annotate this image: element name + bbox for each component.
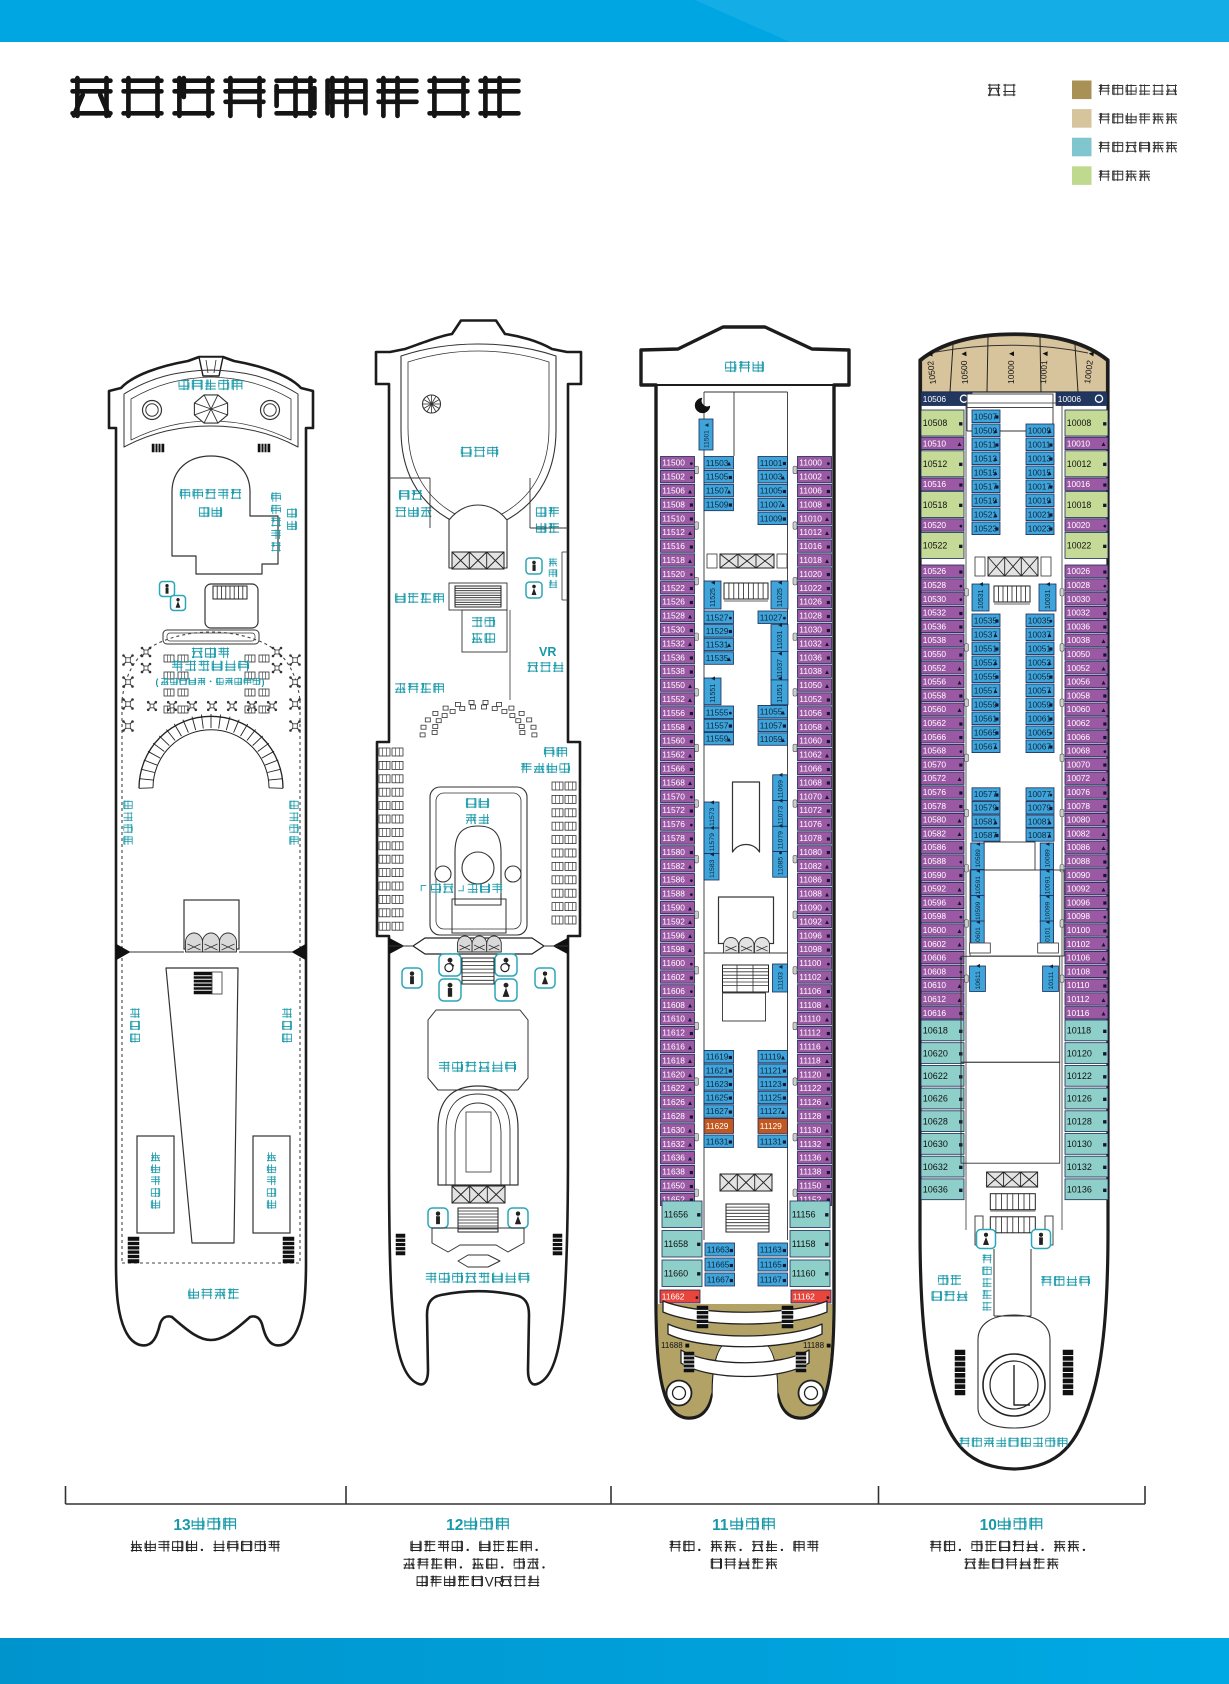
svg-text:■: ■ [826,1030,830,1037]
svg-text:■: ■ [1049,442,1053,449]
svg-text:■: ■ [689,739,693,746]
svg-text:▲: ▲ [824,725,831,732]
svg-text:■: ■ [1103,421,1107,428]
svg-text:10508: 10508 [923,418,948,428]
svg-text:▲: ▲ [956,666,963,673]
svg-text:10610: 10610 [923,980,947,990]
svg-text:■: ■ [995,674,999,681]
svg-text:■: ■ [728,1068,732,1075]
svg-text:■: ■ [729,1247,733,1254]
svg-text:11610: 11610 [662,1014,685,1024]
svg-text:10620: 10620 [923,1048,948,1058]
svg-text:11667: 11667 [707,1275,730,1285]
svg-text:10618: 10618 [923,1026,948,1036]
svg-text:■: ■ [959,721,963,728]
svg-text:11506: 11506 [662,486,685,496]
svg-text:●: ● [1103,914,1107,921]
svg-text:11108: 11108 [799,1000,821,1010]
svg-text:■: ■ [826,655,830,662]
svg-text:10538: 10538 [923,635,947,645]
svg-text:11596: 11596 [662,930,685,940]
svg-text:▲: ▲ [992,498,999,505]
svg-text:■: ■ [826,1086,830,1093]
svg-text:11158: 11158 [792,1239,816,1249]
svg-text:■: ■ [826,600,830,607]
svg-text:■: ■ [959,610,963,617]
svg-text:■: ■ [826,1072,830,1079]
svg-text:11579 ▲: 11579 ▲ [709,824,716,851]
svg-text:■: ■ [729,1277,733,1284]
svg-text:11020: 11020 [799,569,822,579]
svg-text:10532: 10532 [923,608,947,618]
svg-text:10078: 10078 [1067,801,1091,811]
svg-text:10522: 10522 [923,541,948,551]
svg-text:11562: 11562 [662,750,685,760]
svg-text:10126: 10126 [1067,1094,1092,1104]
svg-text:10558: 10558 [923,690,947,700]
svg-text:10090: 10090 [1067,870,1091,880]
svg-text:VR: VR [539,645,556,659]
svg-text:11118: 11118 [799,1055,821,1065]
svg-text:■: ■ [1103,1142,1107,1149]
svg-text:10512: 10512 [923,459,948,469]
svg-text:10511: 10511 [974,439,997,449]
svg-text:■: ■ [1103,610,1107,617]
svg-text:■: ■ [826,1169,830,1176]
svg-text:■: ■ [995,806,999,813]
svg-text:10582: 10582 [923,828,947,838]
svg-text:▲: ▲ [956,997,963,1004]
svg-text:10066: 10066 [1067,732,1091,742]
svg-text:▲: ▲ [780,502,787,509]
svg-text:10531 ▲: 10531 ▲ [978,581,985,609]
svg-text:11582: 11582 [662,861,685,871]
svg-text:10586: 10586 [923,842,947,852]
svg-text:11600: 11600 [662,958,685,968]
svg-text:10506: 10506 [923,394,947,404]
svg-text:11078: 11078 [799,833,822,843]
svg-text:▲: ▲ [687,905,694,912]
svg-text:11560: 11560 [662,736,685,746]
svg-text:11120: 11120 [799,1069,821,1079]
svg-text:10552: 10552 [923,663,947,673]
svg-text:▲: ▲ [1046,498,1053,505]
svg-text:■: ■ [825,1212,829,1219]
svg-text:▲: ▲ [1100,776,1107,783]
svg-text:11621: 11621 [706,1065,729,1075]
svg-text:▲: ▲ [687,919,694,926]
svg-text:▲: ▲ [956,817,963,824]
svg-text:10596: 10596 [923,897,947,907]
svg-text:10012: 10012 [1067,459,1092,469]
svg-text:■: ■ [995,702,999,709]
svg-text:10088: 10088 [1067,856,1091,866]
svg-text:11558: 11558 [662,722,685,732]
svg-text:▲: ▲ [1100,886,1107,893]
svg-text:11616: 11616 [662,1042,685,1052]
svg-text:10102: 10102 [1067,939,1091,949]
svg-text:■: ■ [782,516,786,523]
svg-text:▲: ▲ [992,632,999,639]
svg-text:■: ■ [1103,1051,1107,1058]
svg-text:10006: 10006 [1058,394,1082,404]
svg-text:●: ● [826,1294,830,1301]
svg-text:●: ● [826,474,830,481]
svg-text:■: ■ [1103,790,1107,797]
svg-text:▲: ▲ [824,1156,831,1163]
svg-text:▲: ▲ [824,669,831,676]
svg-text:■: ■ [782,488,786,495]
svg-text:■: ■ [1103,762,1107,769]
svg-text:11086: 11086 [799,875,822,885]
svg-text:10106: 10106 [1067,953,1091,963]
svg-text:11505: 11505 [706,472,729,482]
svg-text:11636: 11636 [662,1153,685,1163]
svg-text:■: ■ [782,461,786,468]
svg-text:■: ■ [959,735,963,742]
svg-text:11532: 11532 [662,638,685,648]
svg-text:11036: 11036 [799,652,822,662]
svg-text:11072: 11072 [799,805,822,815]
svg-text:▲: ▲ [1100,942,1107,949]
svg-text:10036: 10036 [1067,621,1091,631]
svg-text:■: ■ [959,462,963,469]
svg-text:11025 ▲: 11025 ▲ [777,579,784,607]
svg-text:■: ■ [689,1183,693,1190]
svg-text:11572: 11572 [662,805,685,815]
svg-text:▲: ▲ [824,516,831,523]
svg-text:10608: 10608 [923,966,947,976]
svg-text:■: ■ [826,933,830,940]
svg-text:■: ■ [697,1212,701,1219]
svg-text:■: ■ [689,600,693,607]
svg-text:▲: ▲ [824,919,831,926]
svg-text:■: ■ [1103,969,1107,976]
svg-text:▲: ▲ [992,744,999,751]
svg-text:●: ● [1103,583,1107,590]
svg-text:10050: 10050 [1067,649,1091,659]
svg-text:▲: ▲ [1100,441,1107,448]
svg-text:▲: ▲ [687,725,694,732]
svg-text:■: ■ [1103,1074,1107,1081]
svg-text:▲: ▲ [687,933,694,940]
svg-text:■: ■ [689,1169,693,1176]
svg-text:■: ■ [826,627,830,634]
svg-text:●: ● [728,615,732,622]
svg-text:▲: ▲ [1046,688,1053,695]
svg-text:▲: ▲ [687,1044,694,1051]
svg-text:▲: ▲ [687,1086,694,1093]
svg-text:11528: 11528 [662,611,685,621]
svg-text:●: ● [1049,792,1053,799]
svg-text:■: ■ [1103,693,1107,700]
svg-text:11092: 11092 [799,916,822,926]
svg-text:10566: 10566 [923,732,947,742]
svg-text:10070: 10070 [1067,759,1091,769]
svg-text:11125: 11125 [760,1093,782,1103]
svg-text:●: ● [959,914,963,921]
svg-text:11165: 11165 [760,1260,782,1270]
svg-text:10130: 10130 [1067,1139,1092,1149]
svg-text:■: ■ [826,739,830,746]
svg-text:11520: 11520 [662,569,685,579]
svg-text:11501 ▲: 11501 ▲ [703,422,710,448]
svg-text:11552: 11552 [662,694,685,704]
svg-text:▲: ▲ [687,947,694,954]
svg-text:10020: 10020 [1067,520,1091,530]
svg-text:10576: 10576 [923,787,947,797]
svg-text:▲: ▲ [824,530,831,537]
svg-text:11009: 11009 [760,513,783,523]
svg-text:10028: 10028 [1067,580,1091,590]
svg-text:■: ■ [826,780,830,787]
svg-text:■: ■ [728,629,732,636]
svg-text:■: ■ [1103,928,1107,935]
svg-text:■: ■ [995,833,999,840]
svg-text:■: ■ [1103,721,1107,728]
svg-text:●: ● [1103,597,1107,604]
svg-text:■: ■ [959,569,963,576]
svg-text:▲: ▲ [687,683,694,690]
svg-text:▲: ▲ [1100,955,1107,962]
svg-text:■: ■ [1103,804,1107,811]
svg-text:11028: 11028 [799,611,822,621]
svg-text:11082: 11082 [799,861,822,871]
svg-text:11662: 11662 [662,1292,685,1302]
svg-text:■: ■ [728,723,732,730]
svg-text:●: ● [959,859,963,866]
svg-text:■: ■ [728,474,732,481]
svg-text:■: ■ [689,516,693,523]
svg-text:▲: ▲ [1100,997,1107,1004]
svg-text:▲: ▲ [1100,1011,1107,1018]
svg-text:11578: 11578 [662,833,685,843]
svg-text:11129: 11129 [760,1121,782,1131]
svg-text:11188 ■: 11188 ■ [803,1341,831,1350]
svg-text:▲: ▲ [992,688,999,695]
svg-text:11525 ▲: 11525 ▲ [710,579,717,607]
svg-text:11620: 11620 [662,1069,685,1079]
svg-text:10568: 10568 [923,746,947,756]
svg-text:11132: 11132 [799,1139,821,1149]
svg-text:▲: ▲ [687,1072,694,1079]
svg-text:▲: ▲ [1046,833,1053,840]
svg-text:11619: 11619 [706,1052,729,1062]
svg-text:▲: ▲ [1046,632,1053,639]
svg-text:■: ■ [1049,716,1053,723]
svg-text:■: ■ [689,669,693,676]
svg-text:■: ■ [826,697,830,704]
svg-text:■: ■ [959,1187,963,1194]
svg-text:10578: 10578 [923,801,947,811]
svg-text:▲: ▲ [992,512,999,519]
svg-text:■: ■ [1049,674,1053,681]
svg-text:▲: ▲ [687,752,694,759]
svg-text:■: ■ [1103,900,1107,907]
svg-text:▲: ▲ [824,1003,831,1010]
svg-text:11052: 11052 [799,694,822,704]
svg-text:■: ■ [1049,744,1053,751]
svg-text:11518: 11518 [662,555,685,565]
svg-text:11090: 11090 [799,903,822,913]
svg-text:■: ■ [1103,569,1107,576]
svg-text:●: ● [782,615,786,622]
svg-text:11665: 11665 [707,1260,730,1270]
svg-text:10580: 10580 [923,815,947,825]
svg-text:●: ● [959,523,963,530]
svg-text:▲: ▲ [824,864,831,871]
svg-text:10100: 10100 [1067,925,1091,935]
svg-text:11001: 11001 [760,458,783,468]
svg-text:■: ■ [1103,873,1107,880]
svg-text:▲: ▲ [824,794,831,801]
svg-text:●: ● [689,794,693,801]
svg-text:11500: 11500 [662,458,685,468]
svg-text:■: ■ [1049,702,1053,709]
svg-text:11656: 11656 [664,1210,688,1220]
svg-text:10560: 10560 [923,704,947,714]
svg-text:10001 ▲: 10001 ▲ [1038,349,1050,384]
svg-text:11096: 11096 [799,930,822,940]
svg-text:■: ■ [826,488,830,495]
svg-text:10616: 10616 [923,1008,947,1018]
svg-text:■: ■ [689,711,693,718]
svg-text:11632: 11632 [662,1139,685,1149]
svg-text:▲: ▲ [956,886,963,893]
svg-text:10098: 10098 [1067,911,1091,921]
svg-text:■: ■ [959,624,963,631]
svg-text:■: ■ [959,693,963,700]
svg-text:●: ● [826,822,830,829]
svg-text:11586: 11586 [662,875,685,885]
svg-text:10052: 10052 [1067,663,1091,673]
svg-text:■: ■ [1103,543,1107,550]
svg-text:10630: 10630 [923,1139,948,1149]
svg-text:11512: 11512 [662,527,685,537]
svg-text:10068: 10068 [1067,746,1091,756]
svg-text:▲: ▲ [824,1128,831,1135]
svg-text:11522: 11522 [662,583,685,593]
svg-text:11688 ■: 11688 ■ [661,1341,690,1350]
svg-text:▲: ▲ [992,470,999,477]
svg-text:10626: 10626 [923,1094,948,1104]
svg-text:10101 ▲: 10101 ▲ [1044,919,1051,946]
svg-text:■: ■ [826,850,830,857]
svg-text:▲: ▲ [956,983,963,990]
svg-text:11150: 11150 [799,1181,821,1191]
svg-text:(: ( [156,677,159,687]
svg-text:■: ■ [959,652,963,659]
svg-text:10591 ▲: 10591 ▲ [975,868,982,895]
svg-text:▲: ▲ [956,441,963,448]
svg-text:●: ● [1049,730,1053,737]
svg-text:10556: 10556 [923,677,947,687]
svg-text:10588: 10588 [923,856,947,866]
svg-text:■: ■ [1103,983,1107,990]
svg-text:▲: ▲ [687,697,694,704]
svg-text:▲: ▲ [1100,817,1107,824]
svg-text:11602: 11602 [662,972,685,982]
svg-text:11557: 11557 [706,721,729,731]
svg-text:▲: ▲ [1100,831,1107,838]
svg-text:11660: 11660 [664,1269,688,1279]
svg-text:10092: 10092 [1067,884,1091,894]
svg-text:11618: 11618 [662,1055,685,1065]
svg-text:11527: 11527 [706,612,729,622]
svg-text:▲: ▲ [687,1003,694,1010]
svg-text:■: ■ [689,850,693,857]
svg-text:11622: 11622 [662,1083,685,1093]
svg-text:■: ■ [689,1114,693,1121]
svg-text:11080: 11080 [799,847,822,857]
svg-text:11085 ●: 11085 ● [778,851,785,875]
svg-text:10520: 10520 [923,520,947,530]
svg-text:11112: 11112 [799,1028,821,1038]
svg-text:11100: 11100 [799,958,821,968]
svg-text:▲: ▲ [780,737,787,744]
svg-text:■: ■ [728,502,732,509]
svg-text:): ) [262,677,265,687]
svg-text:▲: ▲ [687,1128,694,1135]
svg-text:■: ■ [782,1247,786,1254]
svg-text:■: ■ [826,613,830,620]
svg-text:10032: 10032 [1067,608,1091,618]
svg-text:10110: 10110 [1067,980,1090,990]
svg-text:10080: 10080 [1067,815,1091,825]
svg-text:11069 ▲: 11069 ▲ [778,771,785,798]
svg-text:■: ■ [1103,735,1107,742]
svg-text:11062: 11062 [799,750,822,760]
svg-text:▲: ▲ [956,928,963,935]
svg-text:11106: 11106 [799,986,821,996]
svg-text:10622: 10622 [923,1071,948,1081]
svg-text:▲: ▲ [1046,470,1053,477]
svg-text:11131: 11131 [760,1136,782,1146]
svg-text:■: ■ [1103,652,1107,659]
svg-text:10526: 10526 [923,566,947,576]
svg-text:10091 ▲: 10091 ▲ [1044,868,1051,895]
svg-text:11625: 11625 [706,1093,729,1103]
svg-text:10601 ▲: 10601 ▲ [975,919,982,946]
svg-text:▲: ▲ [824,558,831,565]
svg-text:▲: ▲ [780,1054,787,1061]
svg-text:▲: ▲ [687,1156,694,1163]
svg-text:10600: 10600 [923,925,947,935]
svg-text:10599 ▲: 10599 ▲ [975,893,982,920]
svg-text:■: ■ [1049,526,1053,533]
svg-text:■: ■ [689,836,693,843]
svg-text:11631: 11631 [706,1136,729,1146]
svg-text:■: ■ [826,836,830,843]
svg-text:10606: 10606 [923,953,947,963]
svg-text:▲: ▲ [687,864,694,871]
svg-text:▲: ▲ [687,558,694,565]
svg-text:■: ■ [995,730,999,737]
svg-text:▲: ▲ [824,1100,831,1107]
svg-text:10510: 10510 [923,438,947,448]
svg-text:■: ■ [1103,624,1107,631]
svg-text:11119: 11119 [760,1052,782,1062]
svg-text:11070: 11070 [799,791,822,801]
svg-text:10072: 10072 [1067,773,1091,783]
svg-text:■: ■ [1103,1165,1107,1172]
svg-text:11156: 11156 [792,1210,816,1220]
svg-text:■: ■ [1049,646,1053,653]
svg-text:■: ■ [689,627,693,634]
svg-text:▲: ▲ [956,831,963,838]
svg-text:11018: 11018 [799,555,822,565]
svg-text:●: ● [728,710,732,717]
